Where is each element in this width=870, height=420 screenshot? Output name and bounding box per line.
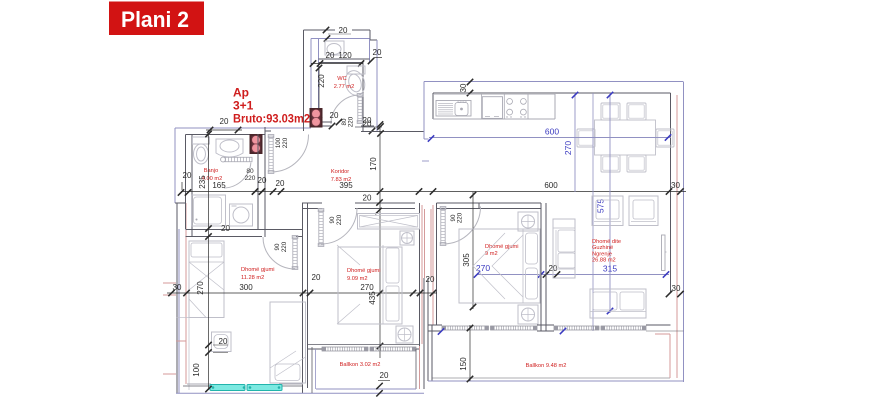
svg-text:220: 220 [336,214,343,225]
svg-text:90: 90 [329,216,336,223]
svg-text:20: 20 [326,51,335,60]
svg-text:100: 100 [275,137,282,148]
svg-text:305: 305 [462,253,471,267]
svg-text:315: 315 [603,264,617,274]
svg-text:170: 170 [369,157,378,171]
svg-text:100: 100 [192,363,201,377]
svg-text:7.83 m2: 7.83 m2 [331,177,352,183]
svg-text:20: 20 [312,273,321,282]
svg-text:20: 20 [276,179,285,188]
svg-text:Dhomë gjumi: Dhomë gjumi [241,267,275,273]
svg-text:30: 30 [173,283,182,292]
svg-text:20: 20 [221,224,230,233]
svg-text:20: 20 [426,275,435,284]
svg-text:20: 20 [373,48,382,57]
svg-text:220: 220 [457,212,464,223]
svg-text:220: 220 [282,137,289,148]
svg-text:Plani 2: Plani 2 [121,7,189,32]
svg-text:20: 20 [363,120,372,129]
svg-text:235: 235 [198,175,207,189]
svg-text:WC: WC [337,76,346,82]
svg-text:30: 30 [672,284,681,293]
svg-text:20: 20 [183,171,192,180]
svg-text:300: 300 [239,283,253,292]
svg-text:575: 575 [596,199,606,213]
svg-text:Dhomë dite: Dhomë dite [592,239,621,245]
svg-text:600: 600 [545,127,559,137]
svg-text:Ap: Ap [233,86,249,100]
svg-text:26.88 m2: 26.88 m2 [592,258,616,264]
svg-text:Bruto:93.03m2: Bruto:93.03m2 [233,112,310,126]
svg-text:270: 270 [360,283,374,292]
svg-text:20: 20 [258,176,267,185]
svg-text:Ballkon 9.48 m2: Ballkon 9.48 m2 [526,363,567,369]
svg-text:Banjo: Banjo [204,168,219,174]
svg-text:Ballkon 3.02 m2: Ballkon 3.02 m2 [340,362,381,368]
svg-text:220: 220 [348,116,355,127]
svg-text:20: 20 [339,26,348,35]
svg-text:11.28 m2: 11.28 m2 [241,275,264,281]
svg-text:9.09 m2: 9.09 m2 [347,276,368,282]
svg-text:220: 220 [317,74,326,88]
svg-text:Dhomë gjumi: Dhomë gjumi [347,268,381,274]
svg-text:20: 20 [330,111,339,120]
svg-text:3+1: 3+1 [233,99,254,113]
svg-text:600: 600 [544,181,558,190]
svg-text:30: 30 [671,181,680,190]
svg-text:120: 120 [338,51,352,60]
svg-text:220: 220 [281,241,288,252]
svg-text:Guzhinë: Guzhinë [592,245,613,251]
svg-text:20: 20 [380,371,389,380]
svg-text:90: 90 [274,243,281,250]
svg-text:20: 20 [219,337,228,346]
svg-text:270: 270 [196,281,205,295]
svg-text:20: 20 [220,117,229,126]
svg-text:270: 270 [563,141,573,155]
svg-text:220: 220 [245,175,256,182]
svg-text:435: 435 [368,291,377,305]
svg-text:Ngrenje: Ngrenje [592,251,612,257]
svg-text:80: 80 [246,168,254,175]
svg-text:165: 165 [212,181,226,190]
svg-text:Koridor: Koridor [331,169,349,175]
svg-text:150: 150 [459,357,468,371]
svg-text:2.77 m2: 2.77 m2 [334,84,355,90]
svg-text:20: 20 [363,194,372,203]
